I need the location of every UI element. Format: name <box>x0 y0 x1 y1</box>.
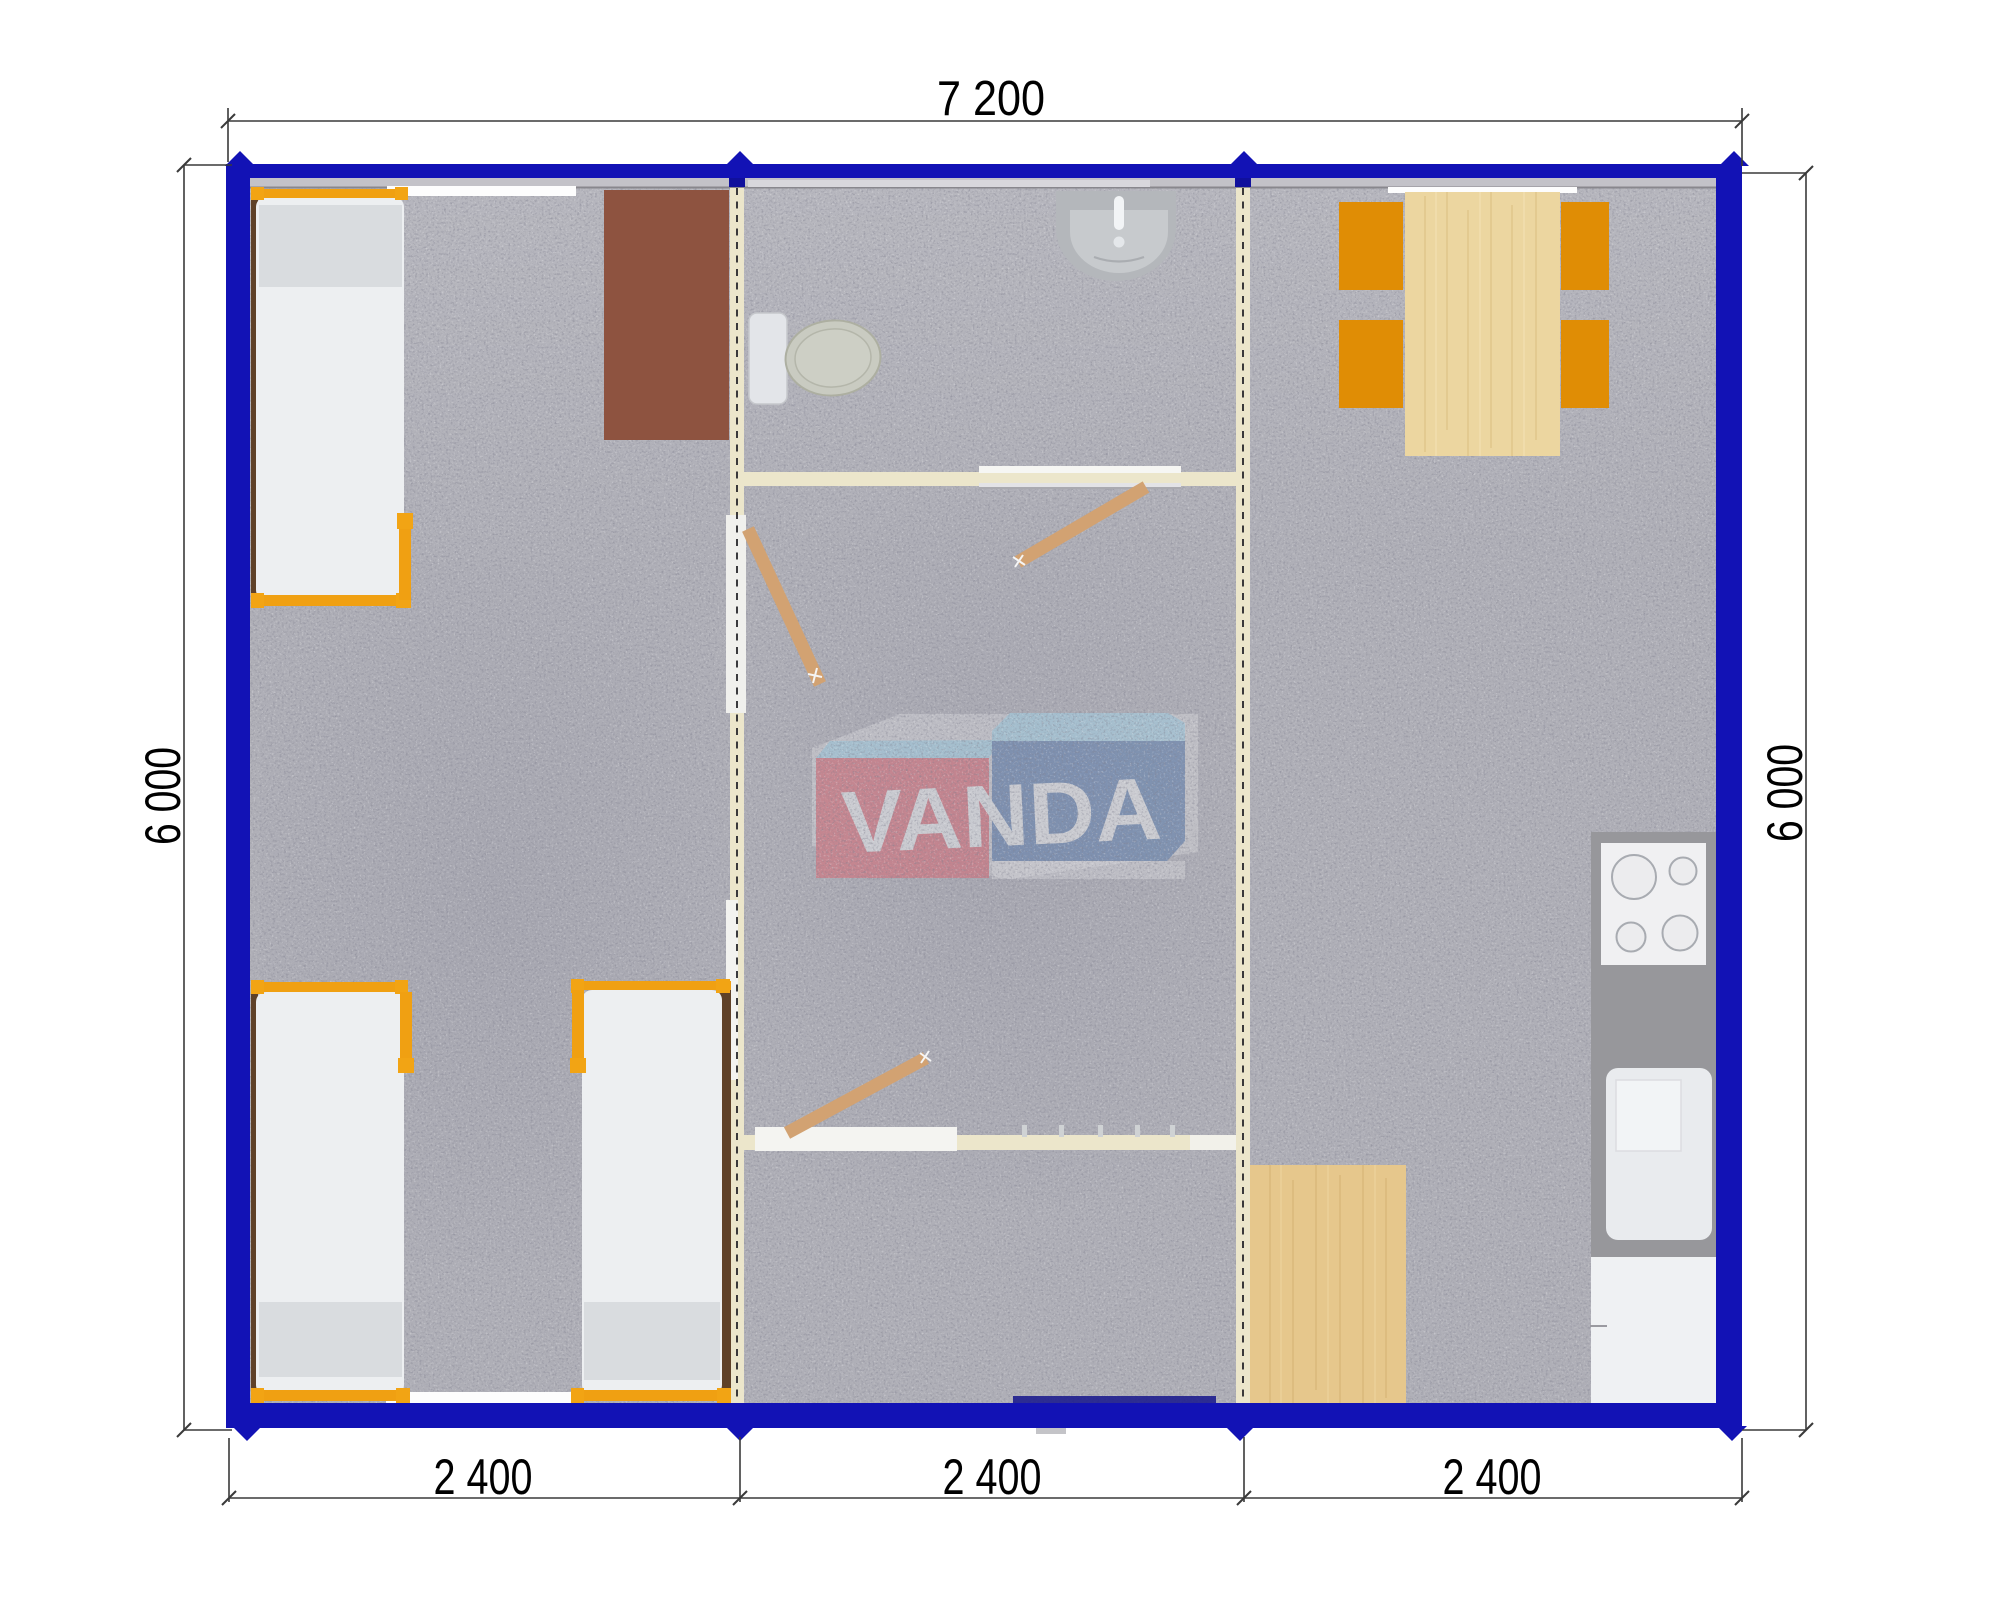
svg-text:6 000: 6 000 <box>135 747 191 845</box>
svg-text:6 000: 6 000 <box>1757 744 1813 842</box>
svg-text:2 400: 2 400 <box>943 1449 1042 1505</box>
svg-text:7 200: 7 200 <box>937 72 1045 126</box>
svg-text:2 400: 2 400 <box>1443 1449 1542 1505</box>
svg-text:2 400: 2 400 <box>434 1449 533 1505</box>
